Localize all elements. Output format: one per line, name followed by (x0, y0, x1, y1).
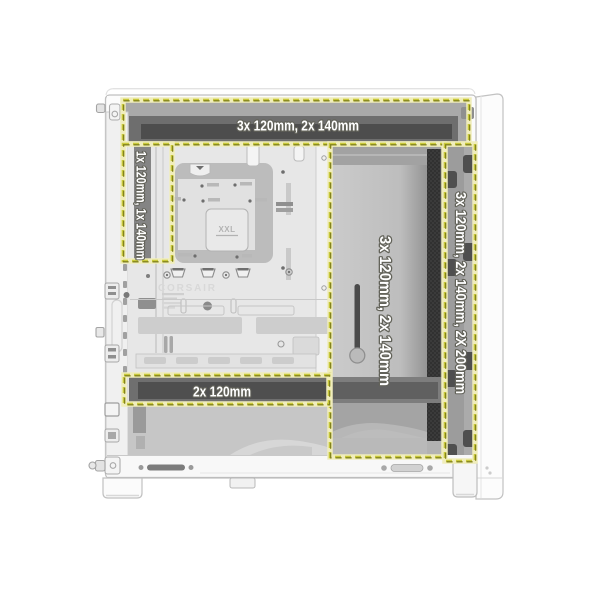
svg-text:3x 120mm, 2x 140mm, 2X 200mm: 3x 120mm, 2x 140mm, 2X 200mm (452, 192, 468, 394)
svg-text:CORSAIR: CORSAIR (158, 283, 217, 294)
svg-text:XXL: XXL (218, 225, 235, 234)
svg-text:1x 120mm, 1x 140mm: 1x 120mm, 1x 140mm (134, 151, 150, 260)
svg-text:3x 120mm, 2x 140mm: 3x 120mm, 2x 140mm (376, 236, 393, 386)
svg-text:3x 120mm, 2x 140mm: 3x 120mm, 2x 140mm (237, 118, 359, 135)
svg-text:2x 120mm: 2x 120mm (193, 385, 251, 401)
